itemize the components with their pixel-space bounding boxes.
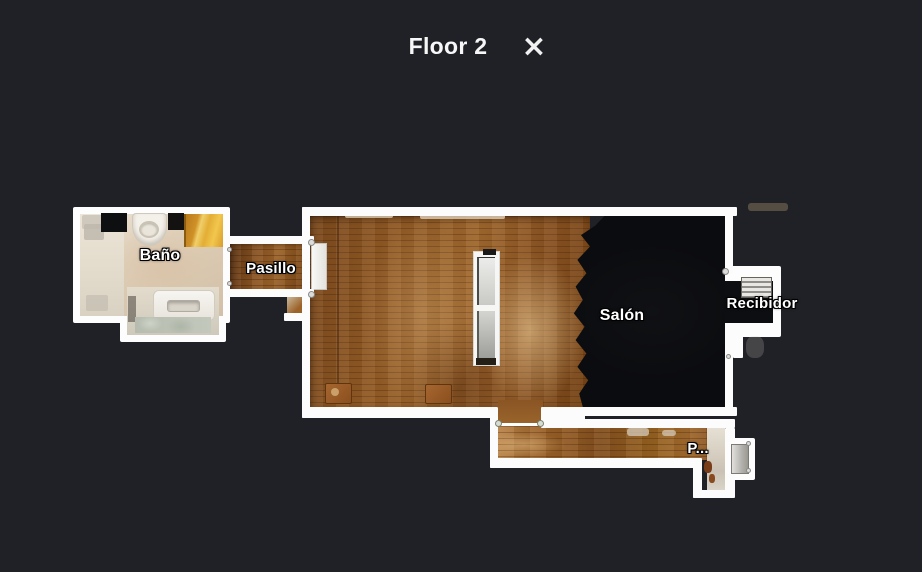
door-marker	[495, 420, 502, 427]
bathtub-basin	[167, 300, 200, 312]
wall	[725, 474, 735, 496]
wall	[541, 407, 585, 428]
close-button[interactable]: ×	[517, 30, 551, 64]
open-door-leaf	[311, 243, 327, 290]
scan-smudge	[662, 430, 676, 436]
wardrobe-upper-segment	[477, 257, 495, 305]
wall-joint-marker	[227, 247, 232, 252]
wall	[583, 407, 737, 416]
wardrobe-cap	[476, 358, 496, 365]
scan-smudge	[746, 336, 764, 358]
room-label-lower-corridor[interactable]: P...	[678, 440, 718, 458]
scan-smudge	[627, 428, 649, 436]
scan-smudge	[748, 203, 788, 211]
wall-joint-marker	[746, 441, 751, 446]
wall	[725, 207, 733, 273]
hallway-nook-floor[interactable]	[287, 297, 302, 314]
wall-joint-marker	[308, 239, 315, 246]
wall-joint-marker	[726, 354, 731, 359]
doorway-line	[499, 423, 542, 426]
wardrobe-cap	[483, 249, 496, 255]
toilet-seat	[139, 221, 159, 238]
wall	[583, 419, 735, 428]
wall	[725, 330, 733, 408]
wall	[725, 428, 735, 442]
scan-gap	[101, 213, 127, 232]
bathroom-green-tiles	[135, 317, 211, 333]
scan-gap	[168, 213, 184, 230]
floor-title: Floor 2	[409, 33, 488, 60]
room-label-living-room[interactable]: Salón	[582, 307, 662, 325]
floor-selector-view: Floor 2 ×	[0, 0, 922, 572]
bath-mat	[184, 214, 223, 247]
wall	[302, 407, 498, 418]
wall	[490, 458, 695, 468]
room-label-entry-hall[interactable]: Recibidor	[712, 295, 812, 313]
wall	[733, 330, 743, 358]
wall-joint-marker	[746, 468, 751, 473]
nightstand-knob	[331, 388, 339, 396]
bathroom-tile-patch	[86, 295, 108, 311]
floor-stain	[709, 474, 715, 483]
wall-joint-marker	[227, 281, 232, 286]
door-marker	[537, 420, 544, 427]
wardrobe-lower-segment	[477, 311, 495, 358]
nightstand	[425, 384, 452, 404]
wall-joint-marker	[308, 291, 315, 298]
floor-seam	[337, 216, 339, 386]
wall	[226, 289, 314, 297]
floor-stain	[704, 461, 712, 473]
wall-joint-marker	[722, 268, 729, 275]
wall	[226, 236, 314, 244]
room-label-hallway[interactable]: Pasillo	[231, 260, 311, 278]
floorplan-canvas[interactable]: Baño Pasillo Salón Recibidor P...	[0, 0, 922, 572]
room-bedroom-wood-floor[interactable]	[310, 216, 590, 407]
close-icon: ×	[517, 31, 551, 63]
room-label-bathroom[interactable]: Baño	[120, 247, 200, 265]
wall	[302, 207, 737, 216]
